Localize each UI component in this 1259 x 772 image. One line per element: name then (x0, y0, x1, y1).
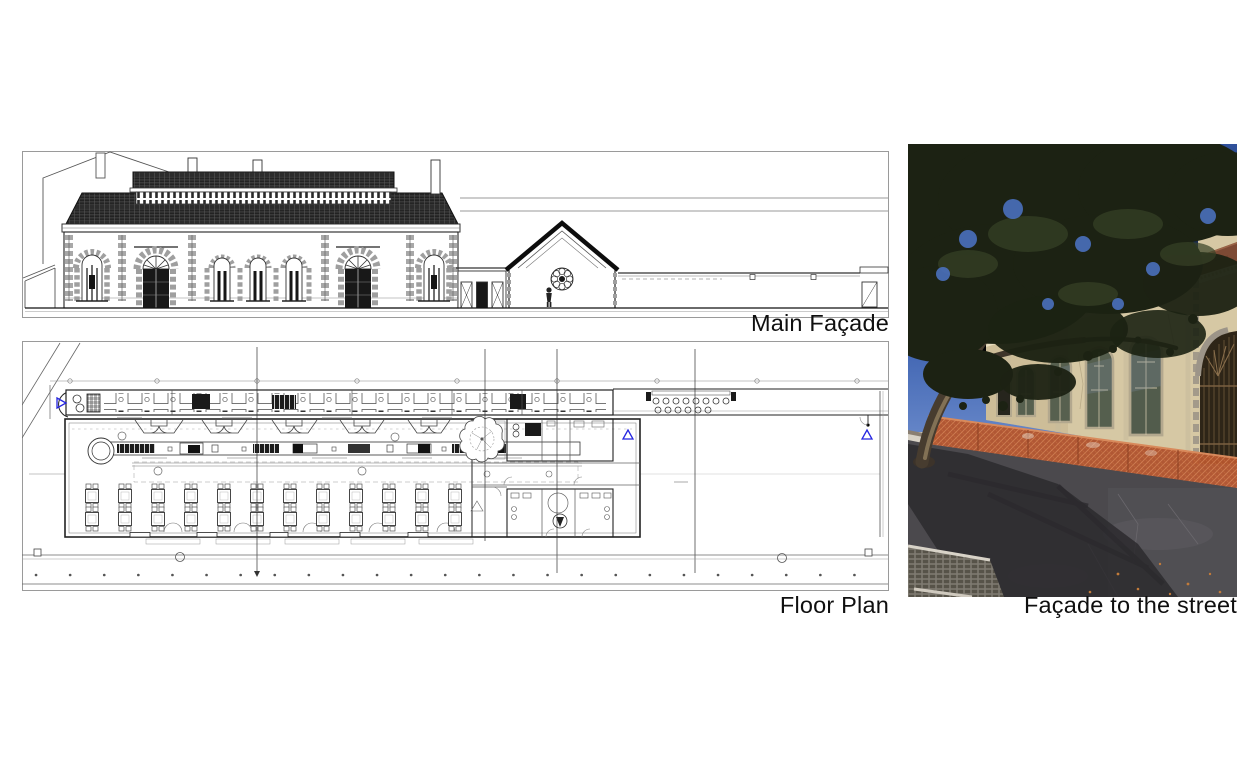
entry-steps (146, 539, 473, 544)
street-photo-caption: Façade to the street (908, 592, 1237, 619)
street-photo-panel (908, 144, 1237, 597)
floor-plan-drawing (22, 341, 889, 591)
kitchen-strip (59, 390, 613, 417)
triple-window-group (207, 257, 309, 301)
annex-doors (456, 268, 508, 308)
service-counter (110, 442, 580, 455)
main-facade-elevation-drawing (22, 151, 889, 318)
iron-gate (1198, 330, 1237, 464)
rose-window-icon (551, 268, 573, 290)
floor-plan-panel (22, 341, 889, 591)
floor-plan-caption: Floor Plan (22, 592, 889, 619)
main-facade-panel (22, 151, 889, 318)
street-photo-image (908, 144, 1237, 597)
main-facade-caption: Main Façade (22, 310, 889, 337)
architecture-figure-page: Main Façade (0, 0, 1259, 772)
